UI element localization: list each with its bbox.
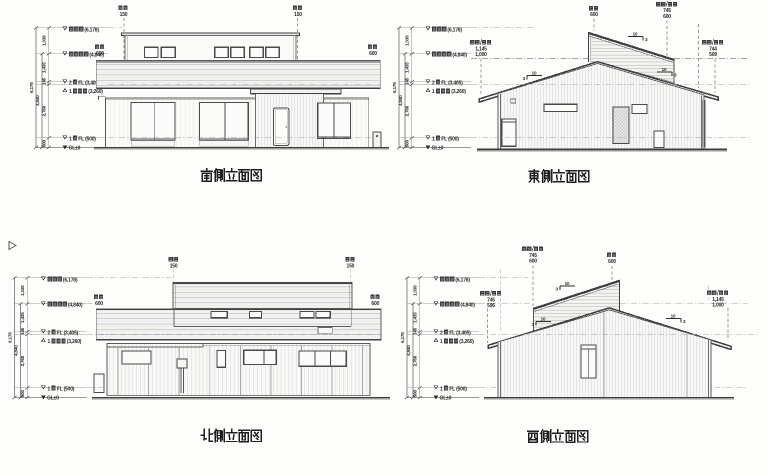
svg-text:10: 10 [633, 31, 638, 36]
svg-text:(6,178): (6,178) [455, 277, 470, 283]
svg-text:500: 500 [20, 390, 25, 398]
svg-text:1,000: 1,000 [712, 303, 724, 309]
svg-text:500: 500 [42, 140, 47, 148]
svg-text:FL: FL [449, 330, 455, 336]
svg-text:(3,405): (3,405) [64, 330, 79, 336]
svg-text:596: 596 [487, 303, 495, 309]
svg-text:145: 145 [42, 77, 47, 85]
svg-text:(3,260): (3,260) [459, 339, 474, 345]
svg-text:1,338: 1,338 [42, 35, 47, 46]
svg-text:4,840: 4,840 [14, 345, 19, 356]
svg-text:1,435: 1,435 [42, 62, 47, 73]
svg-text:(6,178): (6,178) [63, 277, 78, 283]
svg-text:600: 600 [590, 12, 598, 18]
svg-text:6,178: 6,178 [8, 332, 13, 343]
svg-text:600: 600 [529, 259, 537, 265]
svg-text:4,840: 4,840 [406, 345, 411, 356]
svg-text:(3,260): (3,260) [451, 89, 466, 95]
svg-text:(4,840): (4,840) [460, 302, 475, 308]
svg-text:(500): (500) [456, 386, 467, 392]
svg-text:1,338: 1,338 [405, 35, 410, 46]
svg-text:1: 1 [432, 136, 435, 142]
svg-text:500: 500 [405, 140, 410, 148]
svg-text:10: 10 [541, 316, 546, 321]
svg-text:FL: FL [78, 136, 84, 142]
svg-text:1: 1 [432, 89, 435, 95]
svg-text:145: 145 [413, 327, 418, 335]
svg-text:6,178: 6,178 [392, 82, 397, 93]
svg-text:600: 600 [96, 51, 104, 57]
svg-text:GL±0: GL±0 [69, 146, 81, 152]
svg-text:10: 10 [671, 313, 676, 318]
svg-text:FL: FL [57, 330, 63, 336]
svg-text:10: 10 [662, 67, 667, 72]
svg-text:1: 1 [69, 89, 72, 95]
svg-text:600: 600 [95, 301, 103, 307]
svg-text:1: 1 [48, 339, 51, 345]
svg-text:4,840: 4,840 [398, 95, 403, 106]
svg-text:(4,840): (4,840) [452, 52, 467, 58]
svg-text:509: 509 [709, 52, 717, 58]
svg-text:(3,260): (3,260) [67, 339, 82, 345]
svg-text:6,178: 6,178 [400, 332, 405, 343]
svg-text:600: 600 [369, 51, 377, 57]
svg-text:(3,260): (3,260) [88, 89, 103, 95]
svg-text:1,338: 1,338 [20, 285, 25, 296]
svg-text:2,760: 2,760 [413, 355, 418, 366]
svg-text:2: 2 [440, 330, 443, 336]
svg-text:1: 1 [48, 386, 51, 392]
svg-text:(500): (500) [64, 386, 75, 392]
svg-text:FL: FL [441, 136, 447, 142]
svg-text:GL±0: GL±0 [440, 396, 452, 402]
svg-text:150: 150 [294, 12, 302, 18]
svg-text:2: 2 [432, 80, 435, 86]
svg-text:500: 500 [413, 390, 418, 398]
svg-text:1,435: 1,435 [405, 62, 410, 73]
svg-text:150: 150 [120, 12, 128, 18]
svg-text:GL±0: GL±0 [432, 146, 444, 152]
svg-text:600: 600 [663, 14, 671, 20]
svg-text:150: 150 [347, 263, 355, 269]
svg-text:10: 10 [565, 281, 570, 286]
svg-text:(500): (500) [448, 136, 459, 142]
svg-text:(6,178): (6,178) [447, 27, 462, 33]
svg-text:6,178: 6,178 [29, 82, 34, 93]
svg-text:(3,405): (3,405) [448, 80, 463, 86]
svg-text:2: 2 [48, 330, 51, 336]
svg-text:FL: FL [441, 80, 447, 86]
svg-text:1: 1 [440, 339, 443, 345]
svg-text:600: 600 [608, 259, 616, 265]
svg-text:150: 150 [170, 263, 178, 269]
svg-text:1,435: 1,435 [20, 312, 25, 323]
svg-text:10: 10 [532, 70, 537, 75]
svg-text:1,435: 1,435 [413, 312, 418, 323]
svg-text:1: 1 [69, 136, 72, 142]
svg-text:145: 145 [405, 77, 410, 85]
svg-text:GL±0: GL±0 [47, 396, 59, 402]
svg-text:1,338: 1,338 [413, 285, 418, 296]
svg-text:(500): (500) [85, 136, 96, 142]
svg-text:600: 600 [371, 301, 379, 307]
svg-text:(6,178): (6,178) [84, 27, 99, 33]
svg-text:FL: FL [57, 386, 63, 392]
svg-text:(4,840): (4,840) [68, 302, 83, 308]
svg-text:FL: FL [449, 386, 455, 392]
svg-text:1: 1 [440, 386, 443, 392]
svg-text:FL: FL [78, 80, 84, 86]
svg-text:145: 145 [20, 327, 25, 335]
svg-text:2,760: 2,760 [42, 105, 47, 116]
svg-text:(3,405): (3,405) [456, 330, 471, 336]
svg-text:2: 2 [69, 80, 72, 86]
svg-text:4,840: 4,840 [35, 95, 40, 106]
svg-text:2,760: 2,760 [405, 105, 410, 116]
svg-text:1,000: 1,000 [475, 52, 487, 58]
svg-text:2,760: 2,760 [20, 355, 25, 366]
